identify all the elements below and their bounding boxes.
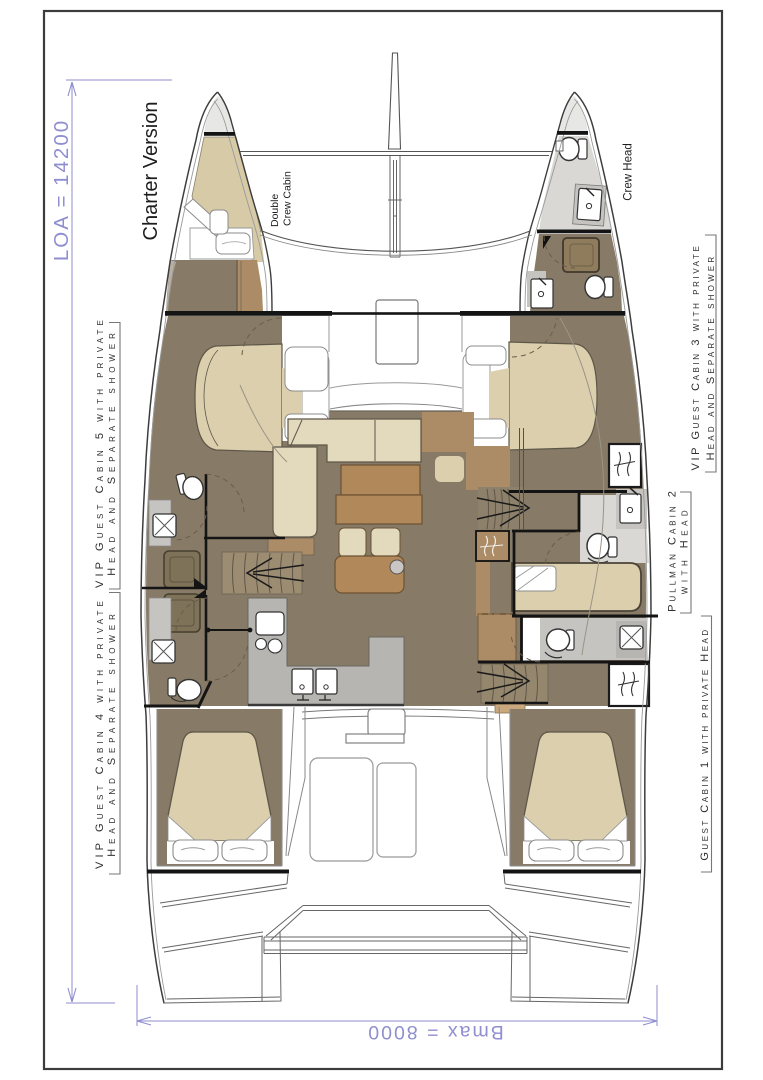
svg-text:Crew Cabin: Crew Cabin xyxy=(282,171,294,226)
svg-text:Crew Head: Crew Head xyxy=(623,143,635,201)
svg-text:Bmax = 8000: Bmax = 8000 xyxy=(366,1021,503,1043)
svg-text:with Head: with Head xyxy=(679,506,691,594)
svg-text:Double: Double xyxy=(269,194,281,227)
svg-text:VIP Guest Cabin 5 with private: VIP Guest Cabin 5 with private xyxy=(94,316,106,588)
svg-text:Head and Separate shower: Head and Separate shower xyxy=(106,328,118,576)
svg-text:Pullman Cabin 2: Pullman Cabin 2 xyxy=(667,488,679,612)
svg-text:VIP Guest Cabin 4 with private: VIP Guest Cabin 4 with private xyxy=(94,597,106,869)
svg-text:Head and Separate shower: Head and Separate shower xyxy=(106,609,118,857)
svg-text:VIP Guest Cabin 3 with private: VIP Guest Cabin 3 with private xyxy=(690,244,702,471)
svg-text:Guest Cabin 1 with private Hea: Guest Cabin 1 with private Head xyxy=(699,627,711,860)
svg-text:Head and Separate shower: Head and Separate shower xyxy=(705,254,717,461)
svg-text:Charter Version: Charter Version xyxy=(140,102,162,241)
svg-text:LOA = 14200: LOA = 14200 xyxy=(50,119,73,261)
